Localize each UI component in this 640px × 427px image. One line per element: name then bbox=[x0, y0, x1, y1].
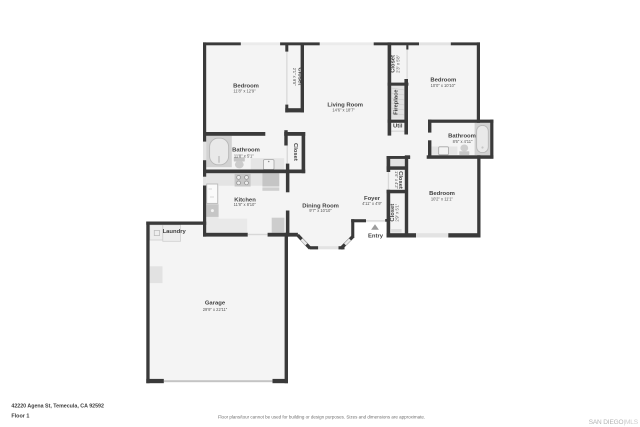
svg-text:2'9" x 5'1": 2'9" x 5'1" bbox=[395, 203, 400, 221]
svg-text:9'7" x 10'10": 9'7" x 10'10" bbox=[309, 208, 332, 213]
svg-text:Closet: Closet bbox=[292, 143, 298, 161]
svg-text:SAN DIEGO|MLS: SAN DIEGO|MLS bbox=[589, 419, 639, 426]
svg-text:14'6" x 18'7": 14'6" x 18'7" bbox=[332, 107, 355, 112]
svg-text:10'2" x 11'1": 10'2" x 11'1" bbox=[431, 196, 454, 201]
svg-text:Floor 1: Floor 1 bbox=[11, 413, 29, 419]
svg-text:Entry: Entry bbox=[368, 233, 384, 239]
svg-text:11'8" x 12'9": 11'8" x 12'9" bbox=[233, 89, 256, 94]
svg-text:29'9" x 22'11": 29'9" x 22'11" bbox=[203, 307, 228, 312]
svg-text:1'6" x 4'2": 1'6" x 4'2" bbox=[394, 171, 399, 189]
svg-text:Fireplace: Fireplace bbox=[394, 89, 400, 115]
svg-text:42220 Agena St, Temecula, CA 9: 42220 Agena St, Temecula, CA 92592 bbox=[11, 403, 104, 409]
svg-text:11'8" x 8'10": 11'8" x 8'10" bbox=[234, 202, 257, 207]
svg-text:8'6" x 4'11": 8'6" x 4'11" bbox=[453, 139, 473, 144]
svg-text:4'11" x 4'9": 4'11" x 4'9" bbox=[362, 201, 382, 206]
svg-text:11'8" x 5'1": 11'8" x 5'1" bbox=[234, 153, 254, 158]
svg-text:Laundry: Laundry bbox=[163, 229, 187, 235]
svg-text:Garage: Garage bbox=[205, 300, 226, 306]
svg-text:Util: Util bbox=[393, 124, 403, 130]
svg-text:2'3" x 5'8": 2'3" x 5'8" bbox=[396, 54, 401, 72]
svg-text:10'0" x 10'10": 10'0" x 10'10" bbox=[431, 83, 456, 88]
svg-text:Floor plans/tour cannot be use: Floor plans/tour cannot be used for buil… bbox=[218, 414, 425, 419]
svg-text:2'1" x 9'5": 2'1" x 9'5" bbox=[292, 68, 297, 86]
